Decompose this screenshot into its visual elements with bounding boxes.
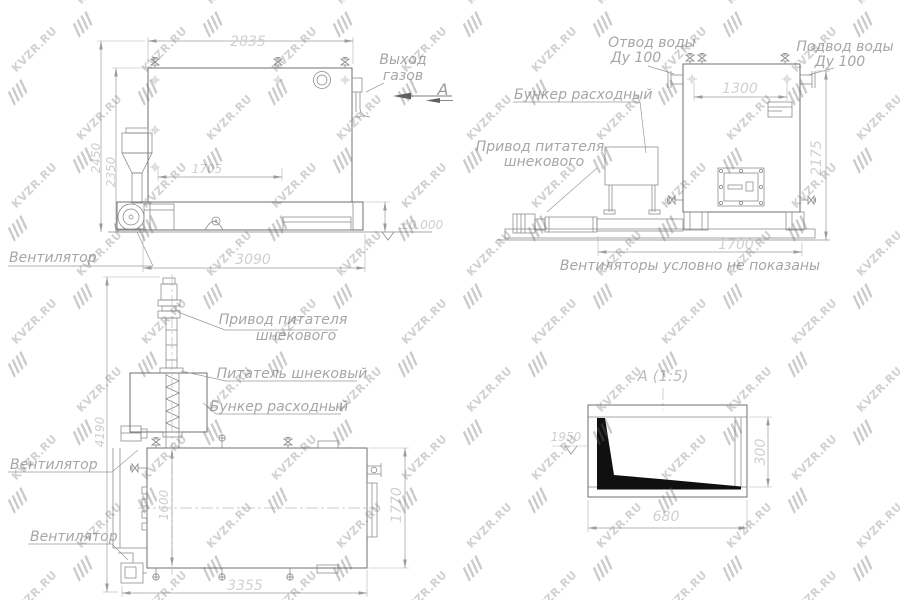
label-feeder-drive-front-line2: шнекового [504,154,584,170]
side-dim-height-inner: 2350 [104,156,118,187]
drawing-sheet: 2835 1705 3090 2450 2350 ±0.000 Выход га… [0,0,900,600]
front-dim-base: 1700 [718,237,754,253]
label-fan-side: Вентилятор [9,250,97,266]
label-feeder-drive-plan-line2: шнекового [256,328,336,344]
side-dim-base: 3090 [235,252,271,268]
detail-title: А (1:5) [637,367,689,385]
cad-drawing: 2835 1705 3090 2450 2350 ±0.000 Выход га… [0,0,900,600]
plan-view-texts: Привод питателя шнекового Питатель шнеко… [10,312,405,594]
detail-dim-width: 680 [653,509,680,525]
plan-dim-base: 3355 [227,578,263,594]
section-arrow-letter: А [437,80,449,99]
label-gas-outlet-line1: Выход [379,52,426,68]
plan-dim-feeder: 1600 [157,489,171,520]
detail-grate-profile [597,418,741,490]
label-fan-plan-bottom: Вентилятор [30,529,118,545]
label-hopper-front: Бункер расходный [514,87,652,103]
label-hopper-plan: Бункер расходный [210,399,348,415]
side-dim-height-outer: 2450 [89,142,103,173]
front-dim-height: 2175 [809,140,825,176]
label-water-inlet-line2: Ду 100 [814,54,865,70]
label-gas-outlet-line2: газов [383,68,423,84]
label-water-inlet-line1: Подвод воды [796,39,893,55]
label-screw-feeder: Питатель шнековый [217,366,368,382]
side-dim-top: 2835 [230,34,266,50]
label-feeder-drive-front-line1: Привод питателя [476,139,605,155]
label-water-outlet-line2: Ду 100 [610,50,661,66]
label-water-outlet-line1: Отвод воды [608,35,696,51]
label-feeder-drive-plan-line1: Привод питателя [219,312,348,328]
note-fans-not-shown: Вентиляторы условно не показаны [560,258,820,274]
plan-dim-width: 1770 [389,487,405,523]
front-dim-top: 1300 [722,81,758,97]
detail-dim-level: 1950 [551,430,582,444]
detail-dim-height: 300 [753,439,769,466]
plan-dim-total: 4190 [93,416,107,447]
side-dim-grate: 1705 [192,162,223,176]
side-level-mark: ±0.000 [399,218,444,232]
label-fan-plan-top: Вентилятор [10,457,98,473]
plan-view-linework [8,274,409,597]
